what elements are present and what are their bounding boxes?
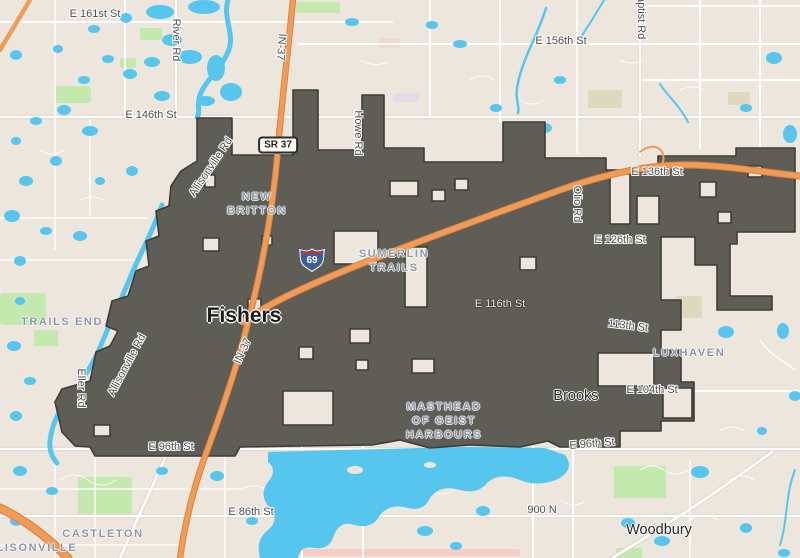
map-tiles <box>0 0 800 558</box>
sr-37-shield: SR 37 <box>258 137 298 154</box>
i-69-shield: 69 <box>299 248 325 272</box>
map-canvas[interactable]: E 161st St E 156th St E 146th St E 136th… <box>0 0 800 558</box>
